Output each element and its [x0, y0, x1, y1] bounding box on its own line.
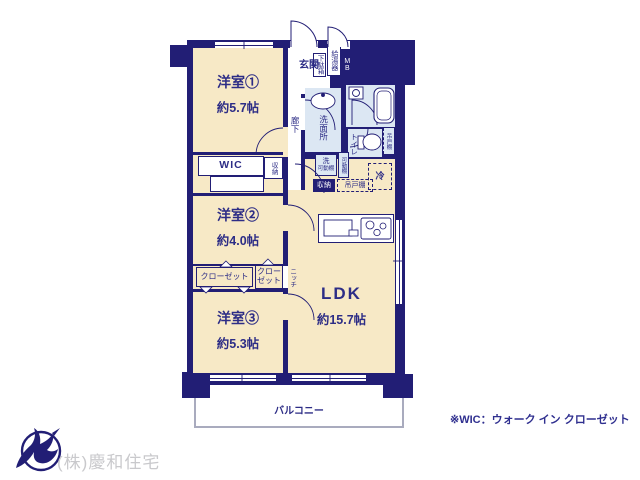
- room3-size: 約5.3帖: [217, 333, 259, 352]
- kitchen-counter: [318, 214, 394, 243]
- washer-shelf-box: 洗 可動棚: [315, 154, 337, 176]
- wall-top-right-block: [405, 40, 415, 85]
- room2-labels: 洋室② 約4.0帖: [193, 205, 283, 249]
- corridor-label: 廊下: [288, 104, 301, 144]
- room3-name: 洋室③: [217, 308, 259, 328]
- entrance-door-opening: [290, 41, 318, 49]
- window-ldk-balcony: [292, 375, 366, 381]
- window-top: [215, 42, 273, 48]
- wic-box: WIC: [198, 156, 264, 176]
- room1-labels: 洋室① 約5.7帖: [193, 72, 283, 116]
- closet-left: クローゼット: [196, 267, 253, 287]
- storage-wic: 収納: [264, 157, 283, 179]
- room3-labels: 洋室③ 約5.3帖: [193, 308, 283, 352]
- meter-box: MB: [341, 50, 353, 80]
- room1-name: 洋室①: [217, 72, 259, 92]
- washer-label: 洗: [323, 158, 330, 166]
- washroom-label: 洗面所: [305, 106, 341, 150]
- toilet-label: トイレ: [348, 131, 359, 157]
- closet-right: クローゼット: [255, 265, 283, 289]
- storage-hall: 収納: [313, 179, 335, 192]
- door-gap-room2: [283, 205, 288, 231]
- ldk-name: LDK: [321, 284, 362, 304]
- room2-name: 洋室②: [217, 205, 259, 225]
- ldk-size: 約15.7帖: [317, 309, 366, 328]
- room2-size: 約4.0帖: [217, 230, 259, 249]
- company-name: (株)慶和住宅: [57, 448, 160, 473]
- swallow-head-icon: [52, 428, 60, 436]
- refrigerator-space: 冷: [368, 163, 392, 190]
- washer-shelf-label: 可動棚: [318, 166, 335, 172]
- window-room3-balcony: [210, 375, 276, 381]
- balcony-label: バルコニー: [196, 402, 402, 417]
- cupboard-toilet-label: 吊戸棚: [383, 129, 394, 153]
- unit-bath-label: UB: [350, 87, 363, 97]
- balcony: バルコニー: [194, 378, 404, 428]
- ldk-labels: LDK 約15.7帖: [288, 284, 395, 328]
- genkan-label: 玄関: [288, 56, 330, 71]
- room1-size: 約5.7帖: [217, 97, 259, 116]
- pillar-bottom-right: [383, 374, 413, 398]
- pillar-bottom-left: [182, 372, 210, 398]
- window-ldk-side: [396, 220, 402, 304]
- wic-lower-box: [210, 176, 264, 192]
- swallow-icon: [16, 428, 58, 468]
- wic-footnote: ※WIC：ウォーク イン クローゼット: [450, 411, 630, 427]
- floor-plan-page: バルコニー 下駄箱 給湯器 MB WIC 収納 洗 可動棚 可動棚 収納 吊戸棚…: [0, 0, 640, 480]
